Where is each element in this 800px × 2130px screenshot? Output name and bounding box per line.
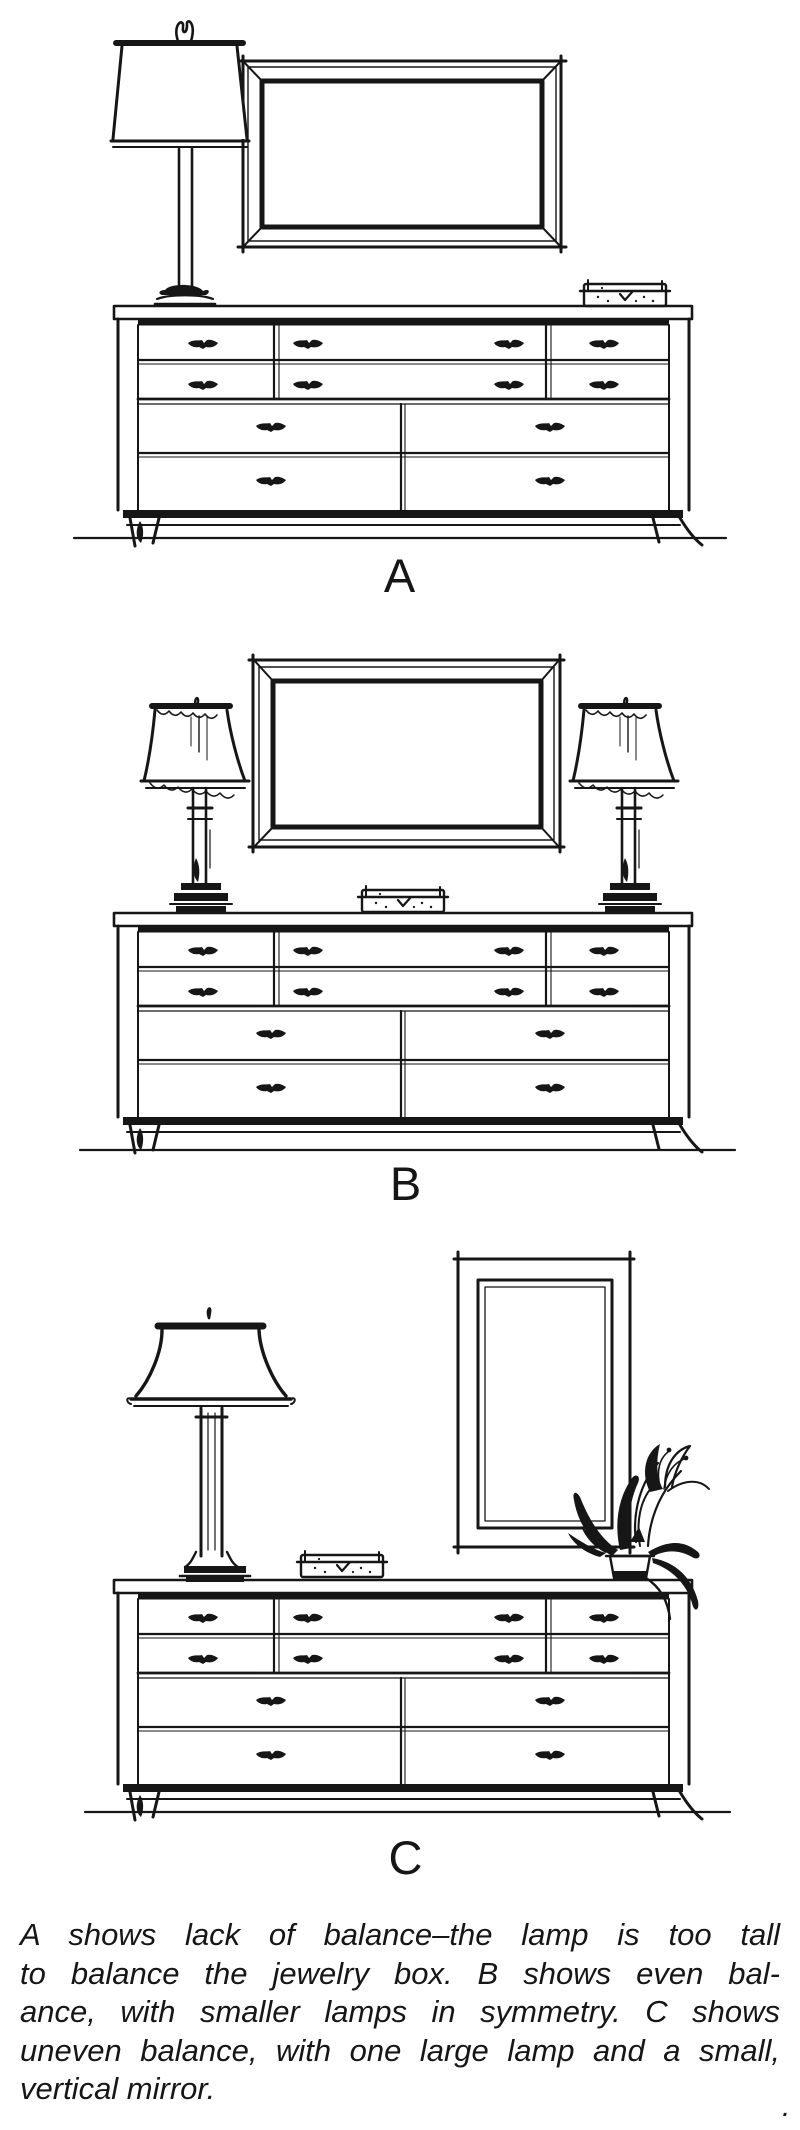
caption-line: A shows lack of balance–the lamp is too … — [20, 1916, 780, 1955]
rectangular-mirror-icon — [249, 655, 564, 852]
jewelry-box-icon — [358, 886, 448, 912]
dresser-icon — [114, 306, 702, 546]
caption-line: uneven balance, with one large lamp and … — [20, 2032, 780, 2071]
panel-a-illustration — [0, 0, 800, 612]
figure-caption: A shows lack of balance–the lamp is too … — [20, 1916, 780, 2109]
panel-b-illustration — [0, 612, 800, 1212]
small-table-lamp-right-icon — [570, 698, 678, 912]
tall-table-lamp-icon — [111, 21, 249, 304]
figure-b-label: B — [390, 1160, 422, 1207]
dresser-icon — [114, 1580, 702, 1820]
small-vertical-mirror-icon — [454, 1252, 634, 1553]
caption-line: ance, with smaller lamps in symmetry. C … — [20, 1993, 780, 2032]
figure-c-label: C — [389, 1834, 424, 1881]
panel-c-illustration — [0, 1212, 800, 1830]
small-table-lamp-left-icon — [141, 698, 249, 912]
wide-horizontal-mirror-icon — [236, 56, 566, 252]
page-corner-mark: . — [782, 2090, 790, 2124]
dresser-icon — [114, 913, 702, 1153]
figure-a-label: A — [384, 552, 416, 599]
large-table-lamp-icon — [127, 1308, 295, 1582]
book-page: A B — [0, 0, 800, 2130]
caption-line: to balance the jewelry box. B shows even… — [20, 1955, 780, 1994]
jewelry-box-icon — [580, 280, 670, 306]
jewelry-box-icon — [297, 1551, 387, 1577]
caption-line: vertical mirror. — [20, 2070, 780, 2109]
